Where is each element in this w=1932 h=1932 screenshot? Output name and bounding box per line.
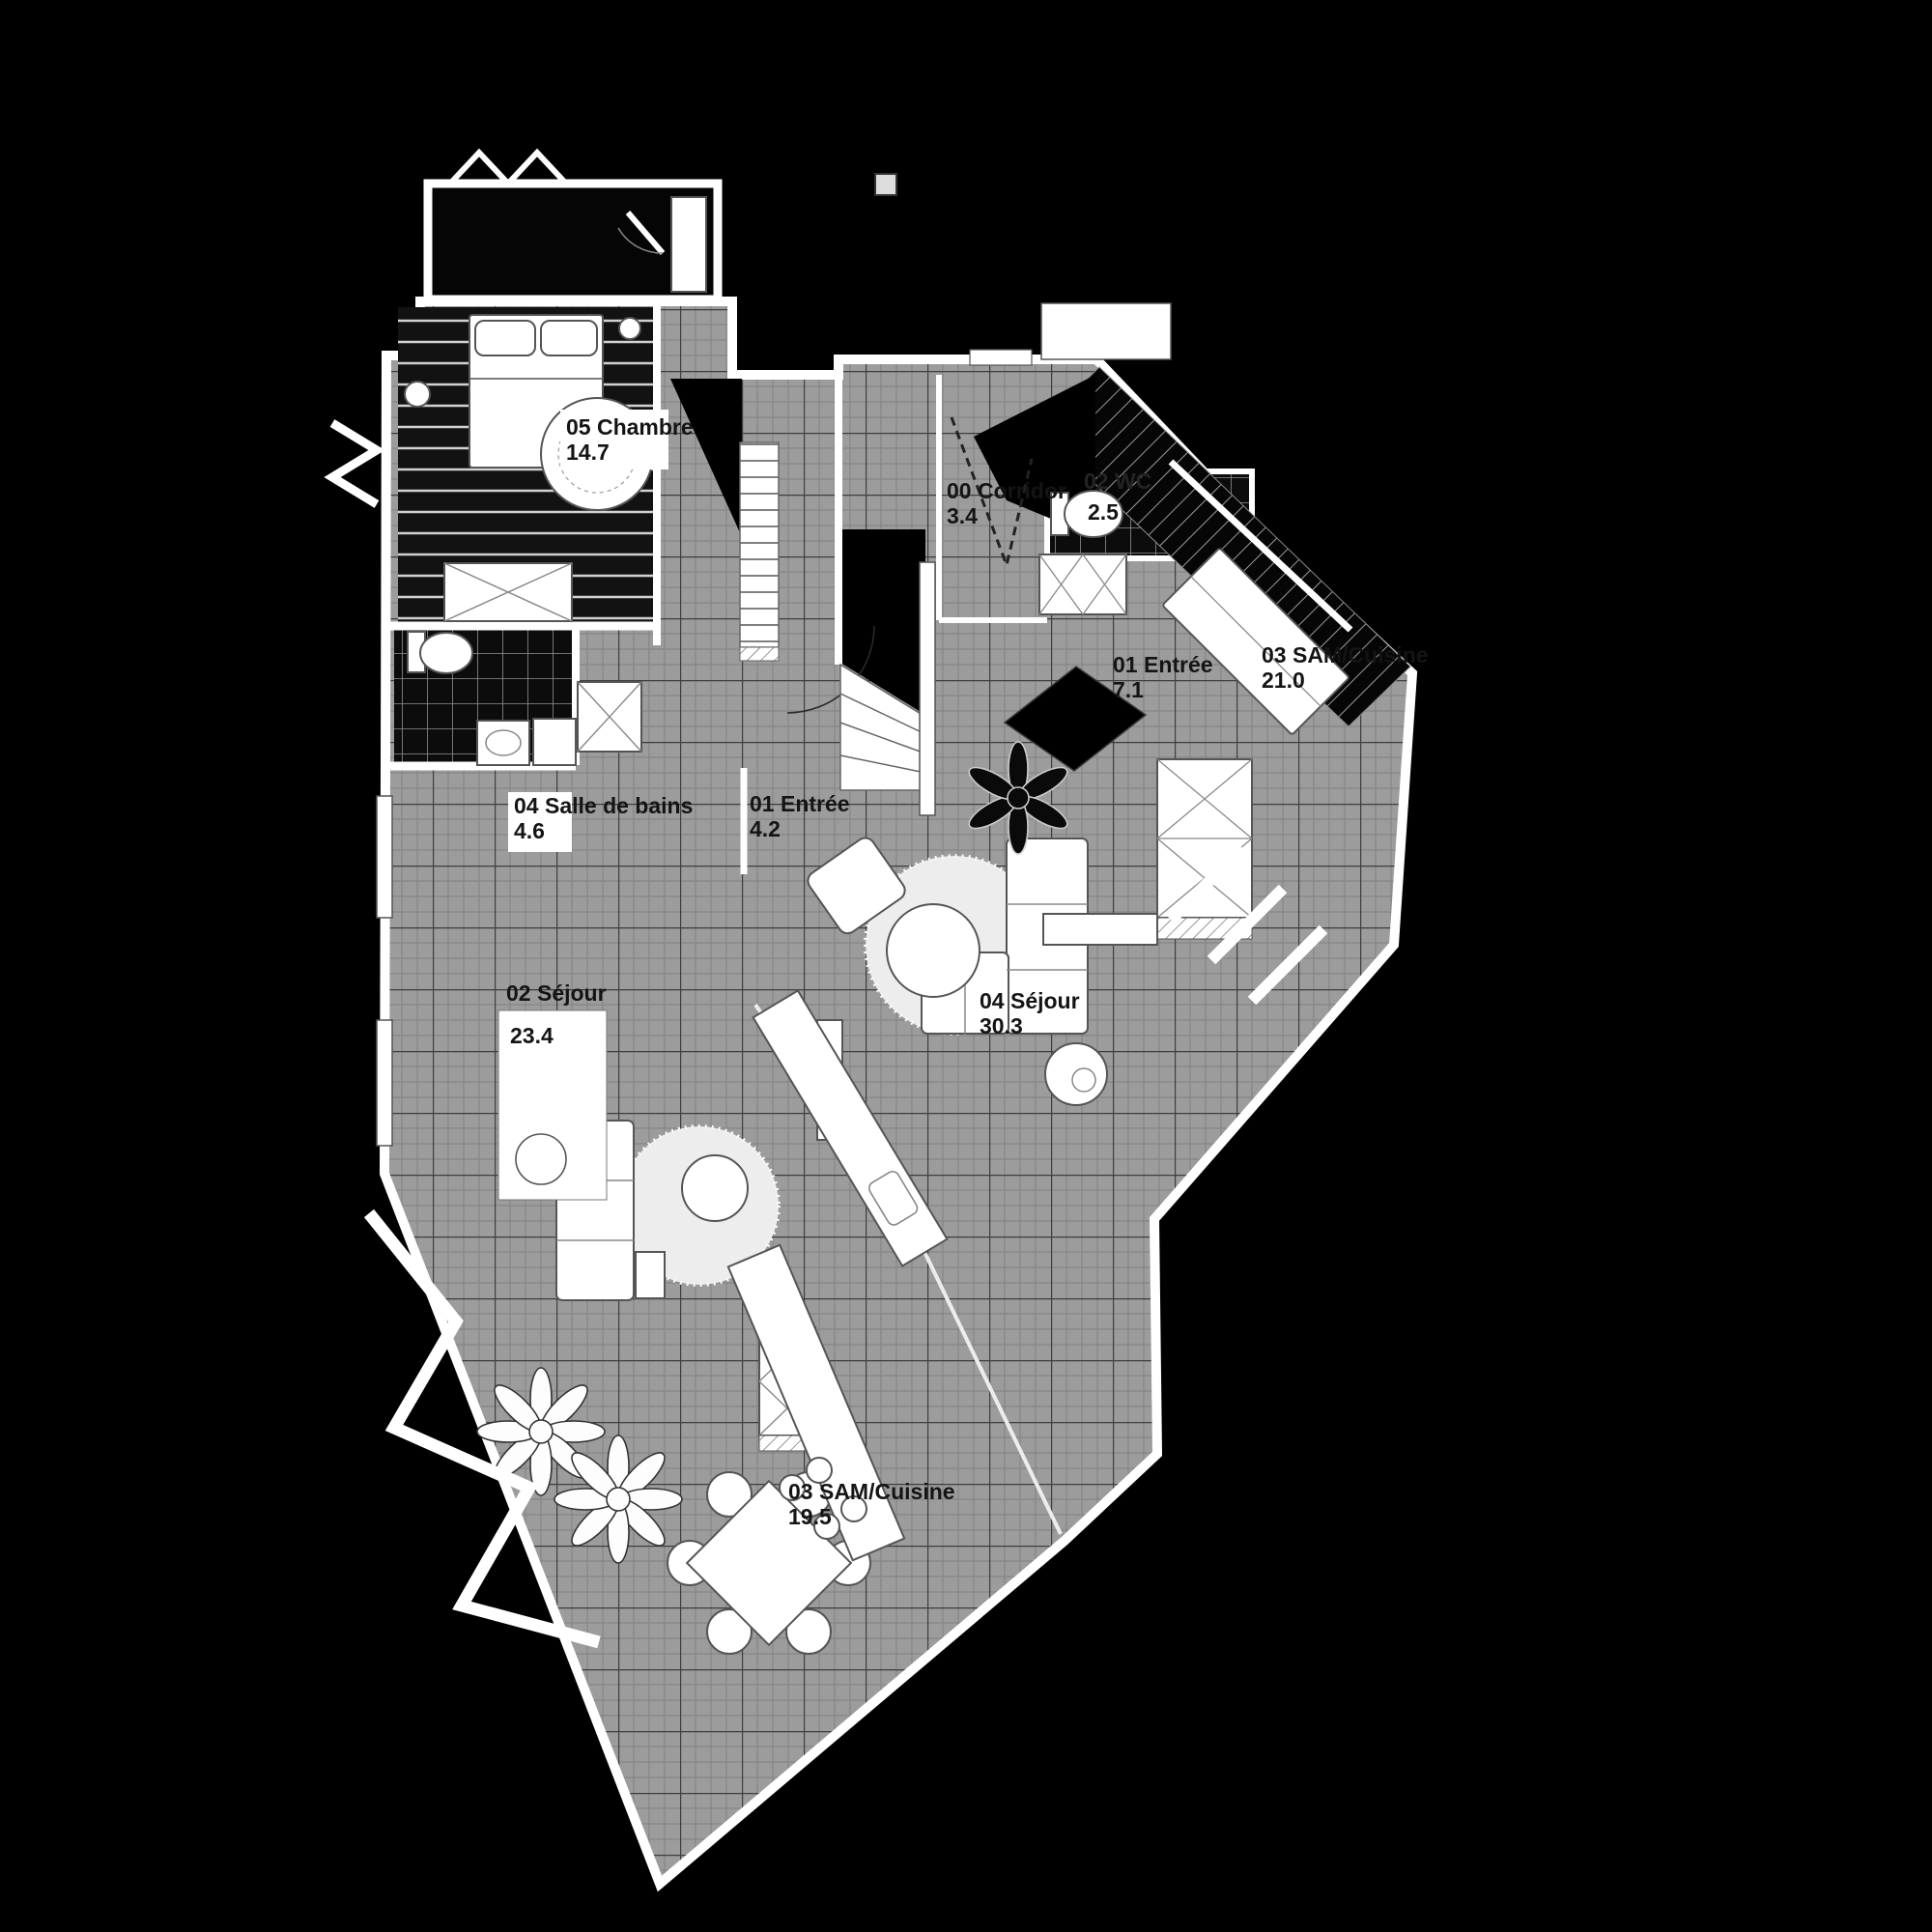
site-marker xyxy=(875,174,896,195)
room-label-sdb-name: 04 Salle de bains xyxy=(514,793,693,818)
floor-plan-canvas: 05 Chambre 14.7 04 Salle de bains 4.6 01… xyxy=(0,0,1932,1932)
room-label-sam-right-area: 21.0 xyxy=(1262,668,1305,693)
room-label-chambre-name: 05 Chambre xyxy=(566,414,694,440)
room-label-sam-left-area: 19.5 xyxy=(788,1504,832,1529)
pillow xyxy=(541,321,597,355)
planter-top-right xyxy=(1041,303,1171,359)
room-label-entree-right-name: 01 Entrée xyxy=(1113,652,1213,677)
room-label-wc-area: 2.5 xyxy=(1088,499,1119,525)
round-table-left xyxy=(682,1155,748,1221)
room-label-entree-right-area: 7.1 xyxy=(1113,677,1144,702)
flower-deco xyxy=(405,382,430,407)
ottoman xyxy=(636,1252,665,1298)
sink xyxy=(477,721,529,765)
toilet-bowl xyxy=(420,633,472,673)
window-left-1 xyxy=(377,796,392,918)
room-label-sdb-area: 4.6 xyxy=(514,818,545,843)
sejour-left-detail-circle xyxy=(516,1134,566,1184)
terrace-door xyxy=(671,197,706,292)
room-label-entree-left-area: 4.2 xyxy=(750,816,781,841)
railing-zigzag-bedroom-left xyxy=(332,423,377,504)
window-top-right xyxy=(970,350,1032,365)
room-label-sejour-right-name: 04 Séjour xyxy=(980,988,1080,1013)
room-label-corridor-area: 3.4 xyxy=(947,503,978,528)
room-label-wc-name: 02 WC xyxy=(1084,469,1151,494)
room-label-sejour-left-area: 23.4 xyxy=(510,1023,554,1048)
pouf xyxy=(887,904,980,997)
side-table xyxy=(1045,1043,1107,1105)
room-label-sejour-right-area: 30.3 xyxy=(980,1013,1023,1038)
entry-wardrobe-right xyxy=(1039,554,1126,614)
staircase-left-hatch xyxy=(740,647,779,661)
room-label-sejour-left-name: 02 Séjour xyxy=(506,980,607,1006)
kitchen-counter-right xyxy=(1043,914,1157,945)
floor-plan-screenshot: 05 Chambre 14.7 04 Salle de bains 4.6 01… xyxy=(0,0,1932,1932)
window-left-2 xyxy=(377,1020,392,1146)
bedside-lamp xyxy=(619,318,640,339)
staircase-left xyxy=(740,442,779,647)
stair-handrail xyxy=(920,562,935,815)
room-label-corridor-name: 00 Corridor xyxy=(947,478,1066,503)
room-label-sam-right-name: 03 SAM/Cuisine xyxy=(1262,642,1429,668)
plant-left-2 xyxy=(554,1435,682,1563)
room-label-sam-left-name: 03 SAM/Cuisine xyxy=(788,1479,955,1504)
room-label-entree-left-name: 01 Entrée xyxy=(750,791,850,816)
bath-cabinet xyxy=(533,719,576,765)
room-label-chambre-area: 14.7 xyxy=(566,440,610,465)
pillow xyxy=(475,321,535,355)
railing-zigzag-top xyxy=(450,153,566,184)
